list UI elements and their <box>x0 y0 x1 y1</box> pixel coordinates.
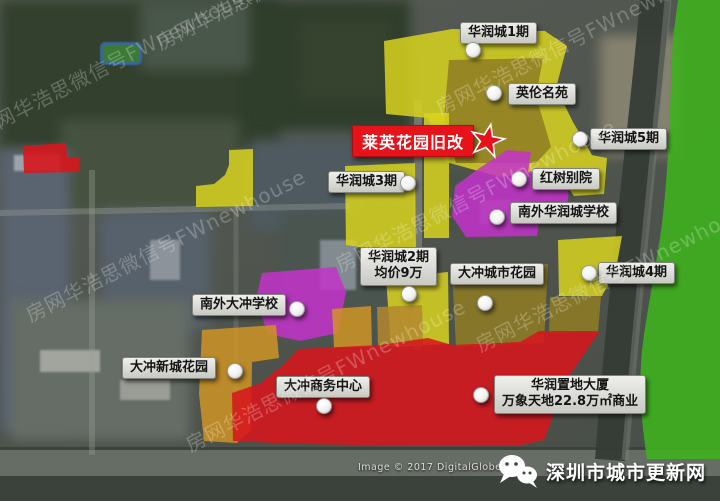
place-label-huarun-city-phase4: 华润城4期 <box>598 262 675 284</box>
region-riverside-greenbelt <box>640 0 720 459</box>
place-label-huarun-city-phase3: 华润城3期 <box>328 171 405 193</box>
place-label-text: 南外大冲学校 <box>200 297 278 313</box>
place-dot-dachong-business-center <box>316 398 332 414</box>
wechat-icon <box>498 453 538 489</box>
place-dot-dachong-newtown-garden <box>227 363 243 379</box>
place-dot-huarun-land-tower <box>473 387 489 403</box>
place-label-text: 南外华润城学校 <box>518 205 609 221</box>
place-label-dachong-business-center: 大冲商务中心 <box>276 376 370 398</box>
place-label-subtext: 均价9万 <box>368 266 429 282</box>
place-label-text: 华润城1期 <box>468 25 529 41</box>
place-dot-huarun-city-phase4 <box>581 265 597 281</box>
place-label-text: 华润城4期 <box>606 265 667 281</box>
place-label-text: 大冲城市花园 <box>458 266 536 282</box>
place-label-text: 大冲新城花园 <box>130 360 208 376</box>
place-label-text: 华润城3期 <box>336 174 397 190</box>
place-dot-huarun-city-phase1 <box>465 42 481 58</box>
place-label-text: 华润城2期 <box>368 250 429 266</box>
branding: 深圳市城市更新网 <box>498 453 706 489</box>
map-attribution: Image © 2017 DigitalGlobe <box>358 462 502 473</box>
place-dot-nanwai-dachong-school <box>289 301 305 317</box>
place-label-subtext: 万象天地22.8万㎡商业 <box>502 394 638 410</box>
place-label-yinglun-mingyuan: 英伦名苑 <box>508 83 576 105</box>
star-marker-icon <box>466 121 508 163</box>
place-label-text: 大冲商务中心 <box>284 379 362 395</box>
place-label-text: 华润城5期 <box>598 131 659 147</box>
region-huarun-city-phase4-south <box>549 296 601 333</box>
branding-text: 深圳市城市更新网 <box>546 458 706 485</box>
place-label-huarun-city-phase5: 华润城5期 <box>590 128 667 150</box>
region-orange-parcel <box>332 306 372 348</box>
place-label-huarun-city-phase2: 华润城2期均价9万 <box>360 247 437 286</box>
place-dot-huarun-city-phase3 <box>400 175 416 191</box>
place-dot-huarun-city-phase5 <box>572 131 588 147</box>
place-label-hongshu-courtyard: 红树别院 <box>532 168 600 190</box>
place-label-huarun-land-tower: 华润置地大厦万象天地22.8万㎡商业 <box>494 375 646 414</box>
place-dot-hongshu-courtyard <box>511 171 527 187</box>
place-dot-dachong-city-garden <box>477 295 493 311</box>
place-label-text: 华润置地大厦 <box>502 378 638 394</box>
place-label-huarun-city-phase1: 华润城1期 <box>460 22 537 44</box>
place-label-dachong-newtown-garden: 大冲新城花园 <box>122 357 216 379</box>
place-label-text: 英伦名苑 <box>516 86 568 102</box>
region-red-parcel-northwest <box>23 143 79 173</box>
place-label-nanwai-dachong-school: 南外大冲学校 <box>192 294 286 316</box>
place-label-text: 红树别院 <box>540 171 592 187</box>
place-dot-huarun-city-phase2 <box>401 286 417 302</box>
place-dot-nanwai-huarun-city-school <box>489 209 505 225</box>
place-dot-yinglun-mingyuan <box>486 85 502 101</box>
redevelopment-title-label: 莱英花园旧改 <box>352 125 474 157</box>
region-yellow-hook-west <box>196 149 253 207</box>
place-label-dachong-city-garden: 大冲城市花园 <box>450 263 544 285</box>
map-canvas: 华润城1期英伦名苑华润城5期华润城3期红树别院南外华润城学校华润城2期均价9万大… <box>0 0 720 501</box>
place-label-nanwai-huarun-city-school: 南外华润城学校 <box>510 202 617 224</box>
